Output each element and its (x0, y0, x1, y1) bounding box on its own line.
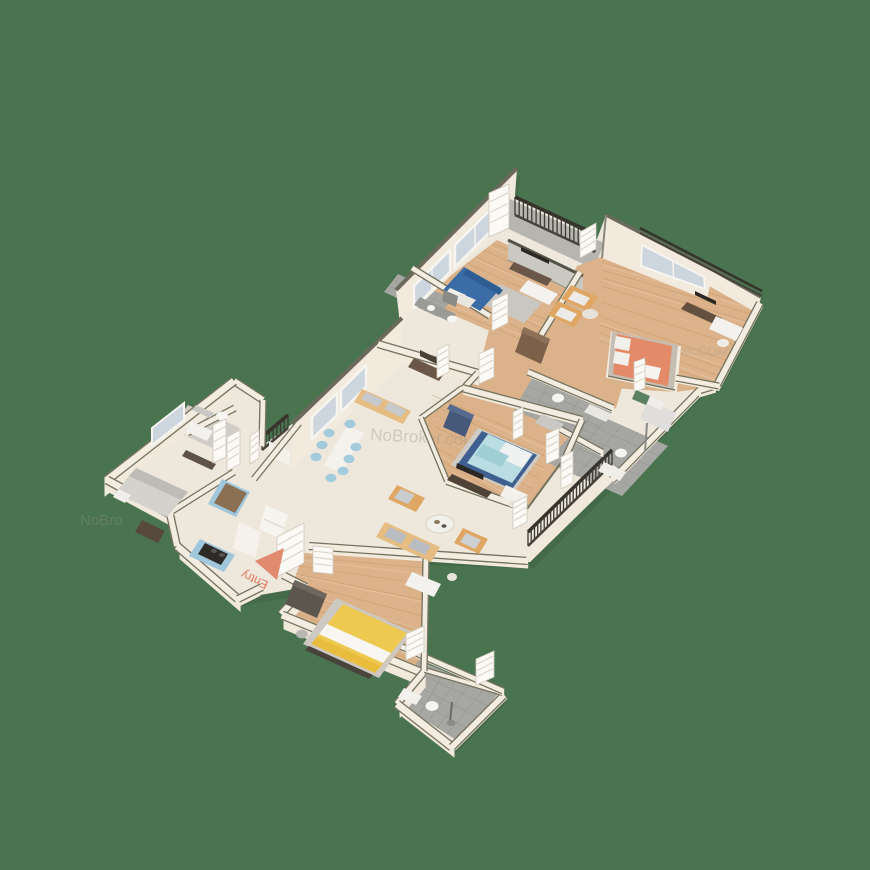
svg-text:NoBro: NoBro (80, 512, 123, 529)
